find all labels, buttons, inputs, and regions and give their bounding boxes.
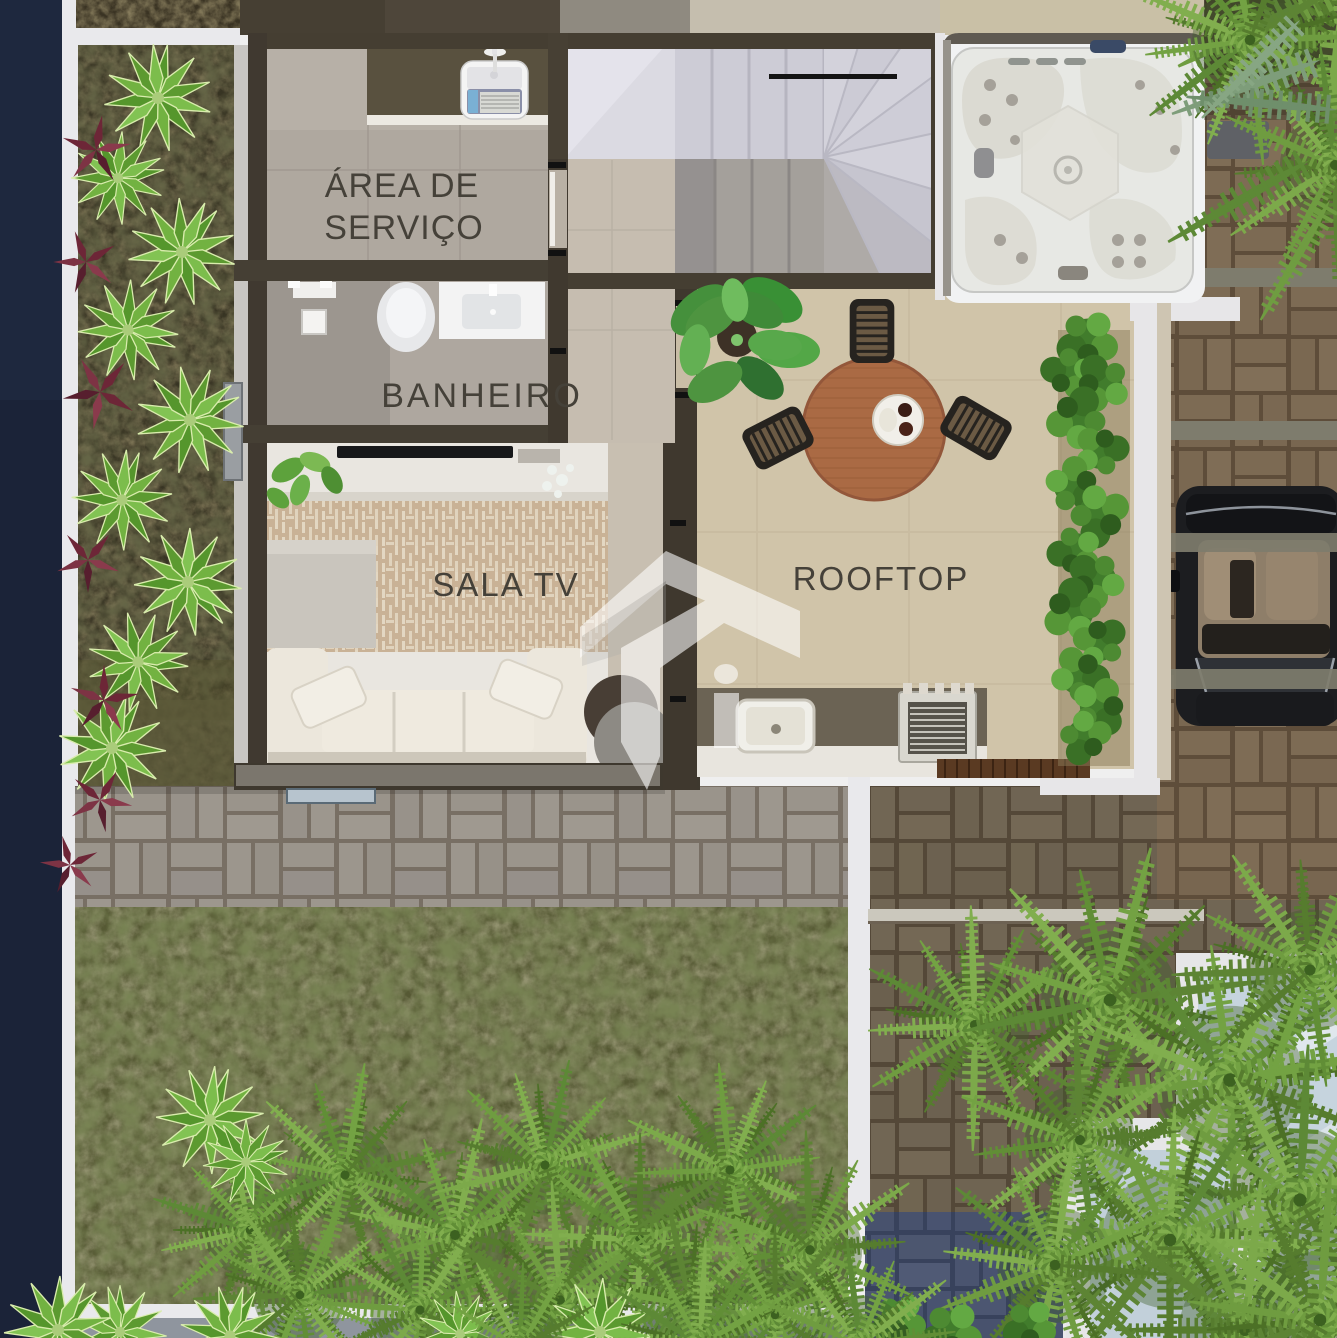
svg-text:ROOFTOP: ROOFTOP <box>793 560 970 597</box>
svg-text:SALA TV: SALA TV <box>432 566 579 603</box>
svg-text:BANHEIRO: BANHEIRO <box>381 377 583 415</box>
svg-text:ÁREA DE: ÁREA DE <box>325 167 479 205</box>
svg-text:SERVIÇO: SERVIÇO <box>324 209 483 247</box>
